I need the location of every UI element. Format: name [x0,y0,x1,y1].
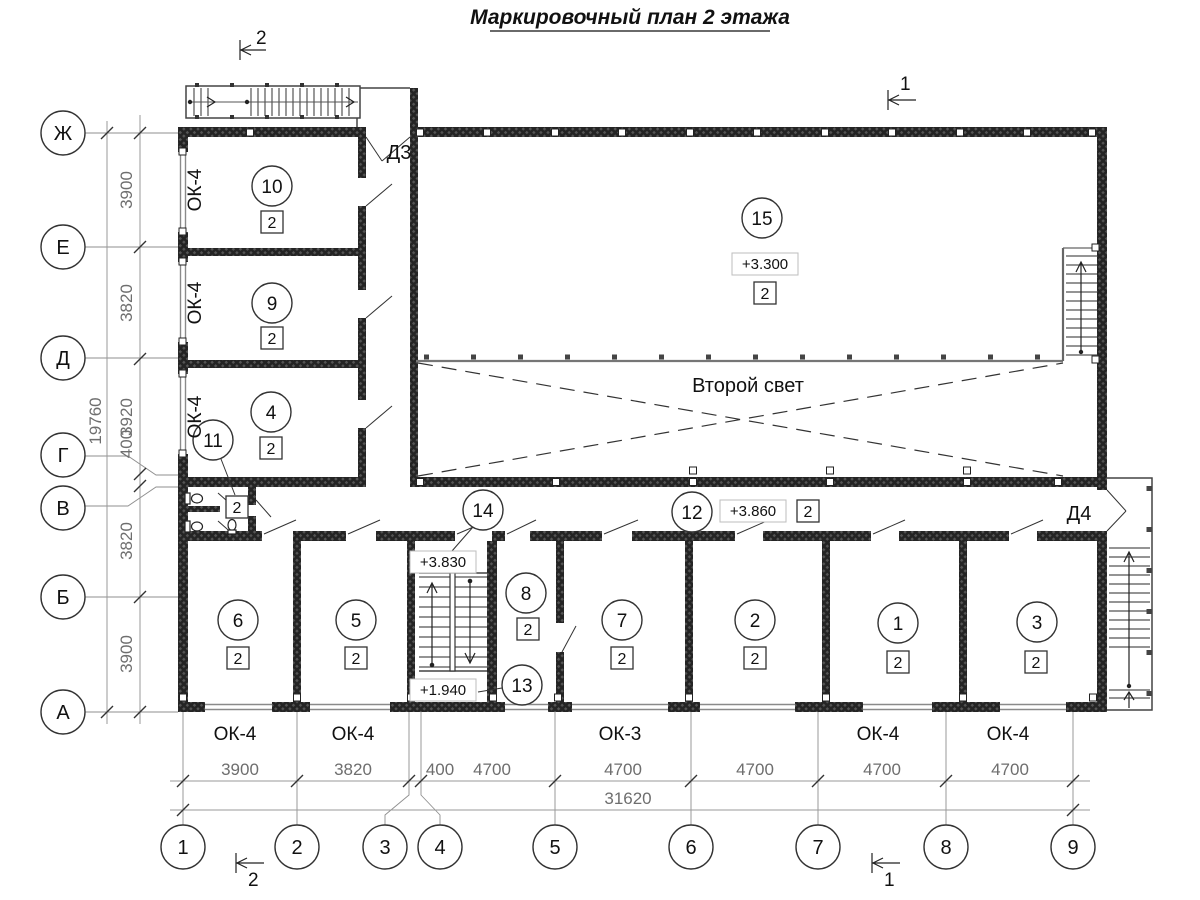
room-4-type: 2 [267,441,276,458]
window-label-bottom-4: ОК-4 [857,724,900,745]
room-3-number: 3 [1032,613,1043,634]
window-label-bottom-3: ОК-3 [599,724,642,745]
section-2-top: 2 [240,28,267,60]
room-11-type: 2 [233,500,242,517]
window-label-left-3: ОК-4 [185,395,206,438]
bottom-axes: 3900 3820 400 4700 4700 4700 4700 4700 3… [161,712,1095,869]
dim-bottom-4: 4700 [473,760,511,779]
window-label-bottom-5: ОК-4 [987,724,1030,745]
hall-level: +3.300 [742,256,788,273]
dim-left-6: 3900 [117,635,136,673]
section-1-top-label: 1 [900,74,911,95]
room-13-number: 13 [511,676,532,697]
sink-fixture [228,520,236,535]
drawing-title: Маркировочный план 2 этажа [470,6,790,31]
room-5-type: 2 [352,651,361,668]
room-9-type: 2 [268,331,277,348]
room-10-type: 2 [268,215,277,232]
room-5-number: 5 [351,611,362,632]
room-2-number: 2 [750,611,761,632]
axis-9: 9 [1067,837,1078,859]
room-7-number: 7 [617,611,628,632]
doors: Д3 Д4 [218,137,1126,652]
room-8-number: 8 [521,584,532,605]
section-1-bottom-label: 1 [884,870,895,891]
page-title: Маркировочный план 2 этажа [470,6,790,29]
second-light-label: Второй свет [692,375,804,397]
room-14-number: 14 [472,501,494,522]
dim-bottom-3: 400 [426,760,454,779]
room-4-number: 4 [266,403,277,424]
dim-bottom-2: 3820 [334,760,372,779]
room-9-number: 9 [267,294,278,315]
room-8-type: 2 [524,622,533,639]
room-15-type: 2 [761,286,770,303]
section-2-bottom-label: 2 [248,870,259,891]
dim-bottom-6: 4700 [736,760,774,779]
dim-left-total: 19760 [86,397,105,444]
wc-fixture-2 [185,521,203,532]
window-label-left-1: ОК-4 [185,168,206,211]
dim-bottom-8: 4700 [991,760,1029,779]
stair-exterior-top [186,85,410,127]
dim-bottom-1: 3900 [221,760,259,779]
dim-left-1: 3900 [117,171,136,209]
dim-bottom-7: 4700 [863,760,901,779]
axis-2: 2 [291,837,302,859]
section-2-top-label: 2 [256,28,267,49]
floor-plan-drawing: Маркировочный план 2 этажа [0,0,1200,900]
axis-d: Д [56,348,70,370]
room-6-type: 2 [234,651,243,668]
axis-g: Г [58,445,69,467]
room-labels: 10 2 9 2 4 2 11 2 15 +3.300 2 12 +3.860 … [193,166,1057,705]
dim-left-5: 3820 [117,522,136,560]
dim-bottom-total: 31620 [604,789,651,808]
axis-v: В [56,498,69,520]
axis-e: Е [56,237,69,259]
room-1-type: 2 [894,655,903,672]
dim-bottom-5: 4700 [604,760,642,779]
axis-b: Б [56,587,69,609]
room-10-number: 10 [261,177,282,198]
axis-5: 5 [549,837,560,859]
windows [178,152,1107,712]
corridor-level: +3.860 [730,503,776,520]
section-1-top: 1 [888,74,916,110]
axis-7: 7 [812,837,823,859]
stair-central [419,573,487,671]
dim-left-4: 400 [117,430,136,458]
room-12-number: 12 [681,503,702,524]
door-d3-label: Д3 [387,142,412,164]
room-3-type: 2 [1032,655,1041,672]
window-label-bottom-2: ОК-4 [332,724,375,745]
axis-a: А [56,702,70,724]
stair-lower-level: +1.940 [420,682,466,699]
room-12-type: 2 [804,504,813,521]
second-light-void: Второй свет [416,357,1063,476]
room-11-number: 11 [203,431,223,452]
room-1-number: 1 [893,614,904,635]
stair-hall-internal [1063,248,1097,361]
section-2-bottom: 2 [236,853,264,891]
room-6-number: 6 [233,611,244,632]
axis-4: 4 [434,837,445,859]
axis-1: 1 [177,837,188,859]
wc-fixture-1 [185,493,203,504]
axis-8: 8 [940,837,951,859]
axis-3: 3 [379,837,390,859]
section-1-bottom: 1 [872,853,900,891]
room-2-type: 2 [751,651,760,668]
door-d4-opening [1097,490,1107,531]
stair-exterior-right [1107,478,1152,710]
window-label-bottom-1: ОК-4 [214,724,257,745]
axis-zh: Ж [54,123,73,145]
room-7-type: 2 [618,651,627,668]
door-d4-label: Д4 [1067,503,1092,525]
dim-left-2: 3820 [117,284,136,322]
room-15-number: 15 [751,209,772,230]
axis-6: 6 [685,837,696,859]
window-label-left-2: ОК-4 [185,281,206,324]
stair-upper-level: +3.830 [420,554,466,571]
plan-svg: Маркировочный план 2 этажа [0,0,1200,900]
